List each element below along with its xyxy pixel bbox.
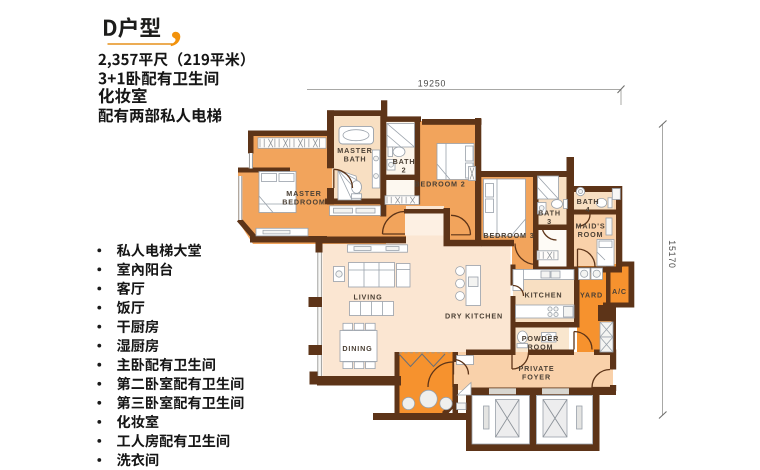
svg-text:DRY KITCHEN: DRY KITCHEN xyxy=(445,312,503,321)
svg-text:BEDROOM 2: BEDROOM 2 xyxy=(414,180,465,189)
svg-text:BATH: BATH xyxy=(344,155,367,164)
svg-text:YARD: YARD xyxy=(580,291,603,300)
svg-text:BEDROOM 3: BEDROOM 3 xyxy=(483,231,534,240)
svg-text:15170: 15170 xyxy=(667,240,677,268)
svg-text:BEDROOM: BEDROOM xyxy=(282,197,325,206)
svg-text:A/C: A/C xyxy=(612,287,627,296)
svg-text:ROOM: ROOM xyxy=(528,343,554,352)
svg-text:19250: 19250 xyxy=(418,79,446,89)
svg-text:KITCHEN: KITCHEN xyxy=(525,291,563,300)
svg-text:4: 4 xyxy=(586,205,591,214)
svg-text:DINING: DINING xyxy=(342,344,372,353)
svg-text:LIVING: LIVING xyxy=(353,293,382,302)
svg-text:FOYER: FOYER xyxy=(522,373,551,382)
svg-text:2: 2 xyxy=(402,165,407,174)
svg-text:ROOM: ROOM xyxy=(578,230,604,239)
svg-text:3: 3 xyxy=(547,217,552,226)
